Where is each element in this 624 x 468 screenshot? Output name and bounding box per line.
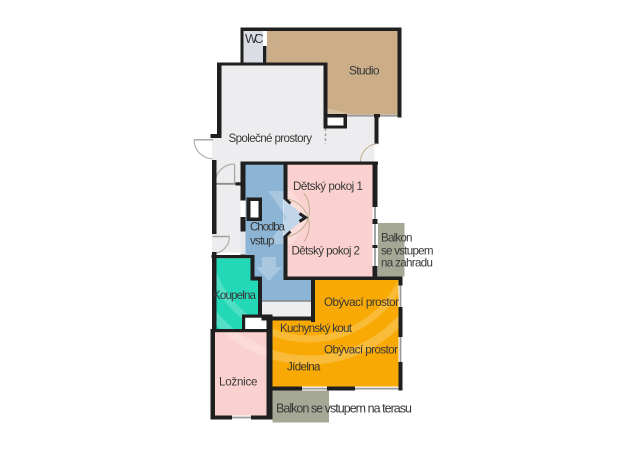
svg-text:Balkon se vstupem na terasu: Balkon se vstupem na terasu (276, 402, 412, 416)
svg-text:Společné prostory: Společné prostory (229, 132, 313, 145)
svg-text:Dětský pokoj 1: Dětský pokoj 1 (293, 180, 363, 193)
svg-text:WC: WC (245, 31, 264, 46)
svg-text:Chodba: Chodba (250, 221, 286, 234)
svg-text:Obývací prostor: Obývací prostor (324, 296, 399, 309)
svg-text:Ložnice: Ložnice (219, 376, 258, 389)
svg-text:Koupelna: Koupelna (213, 289, 257, 302)
svg-text:na zahradu: na zahradu (381, 257, 433, 270)
svg-text:Obývací prostor: Obývací prostor (324, 344, 398, 357)
svg-text:Jídelna: Jídelna (287, 361, 321, 374)
svg-text:Balkon: Balkon (381, 232, 413, 245)
svg-text:Dětský pokoj 2: Dětský pokoj 2 (292, 245, 361, 258)
svg-text:Kuchynský kout: Kuchynský kout (280, 322, 353, 335)
svg-text:Studio: Studio (349, 64, 380, 78)
svg-text:vstup: vstup (250, 235, 275, 248)
